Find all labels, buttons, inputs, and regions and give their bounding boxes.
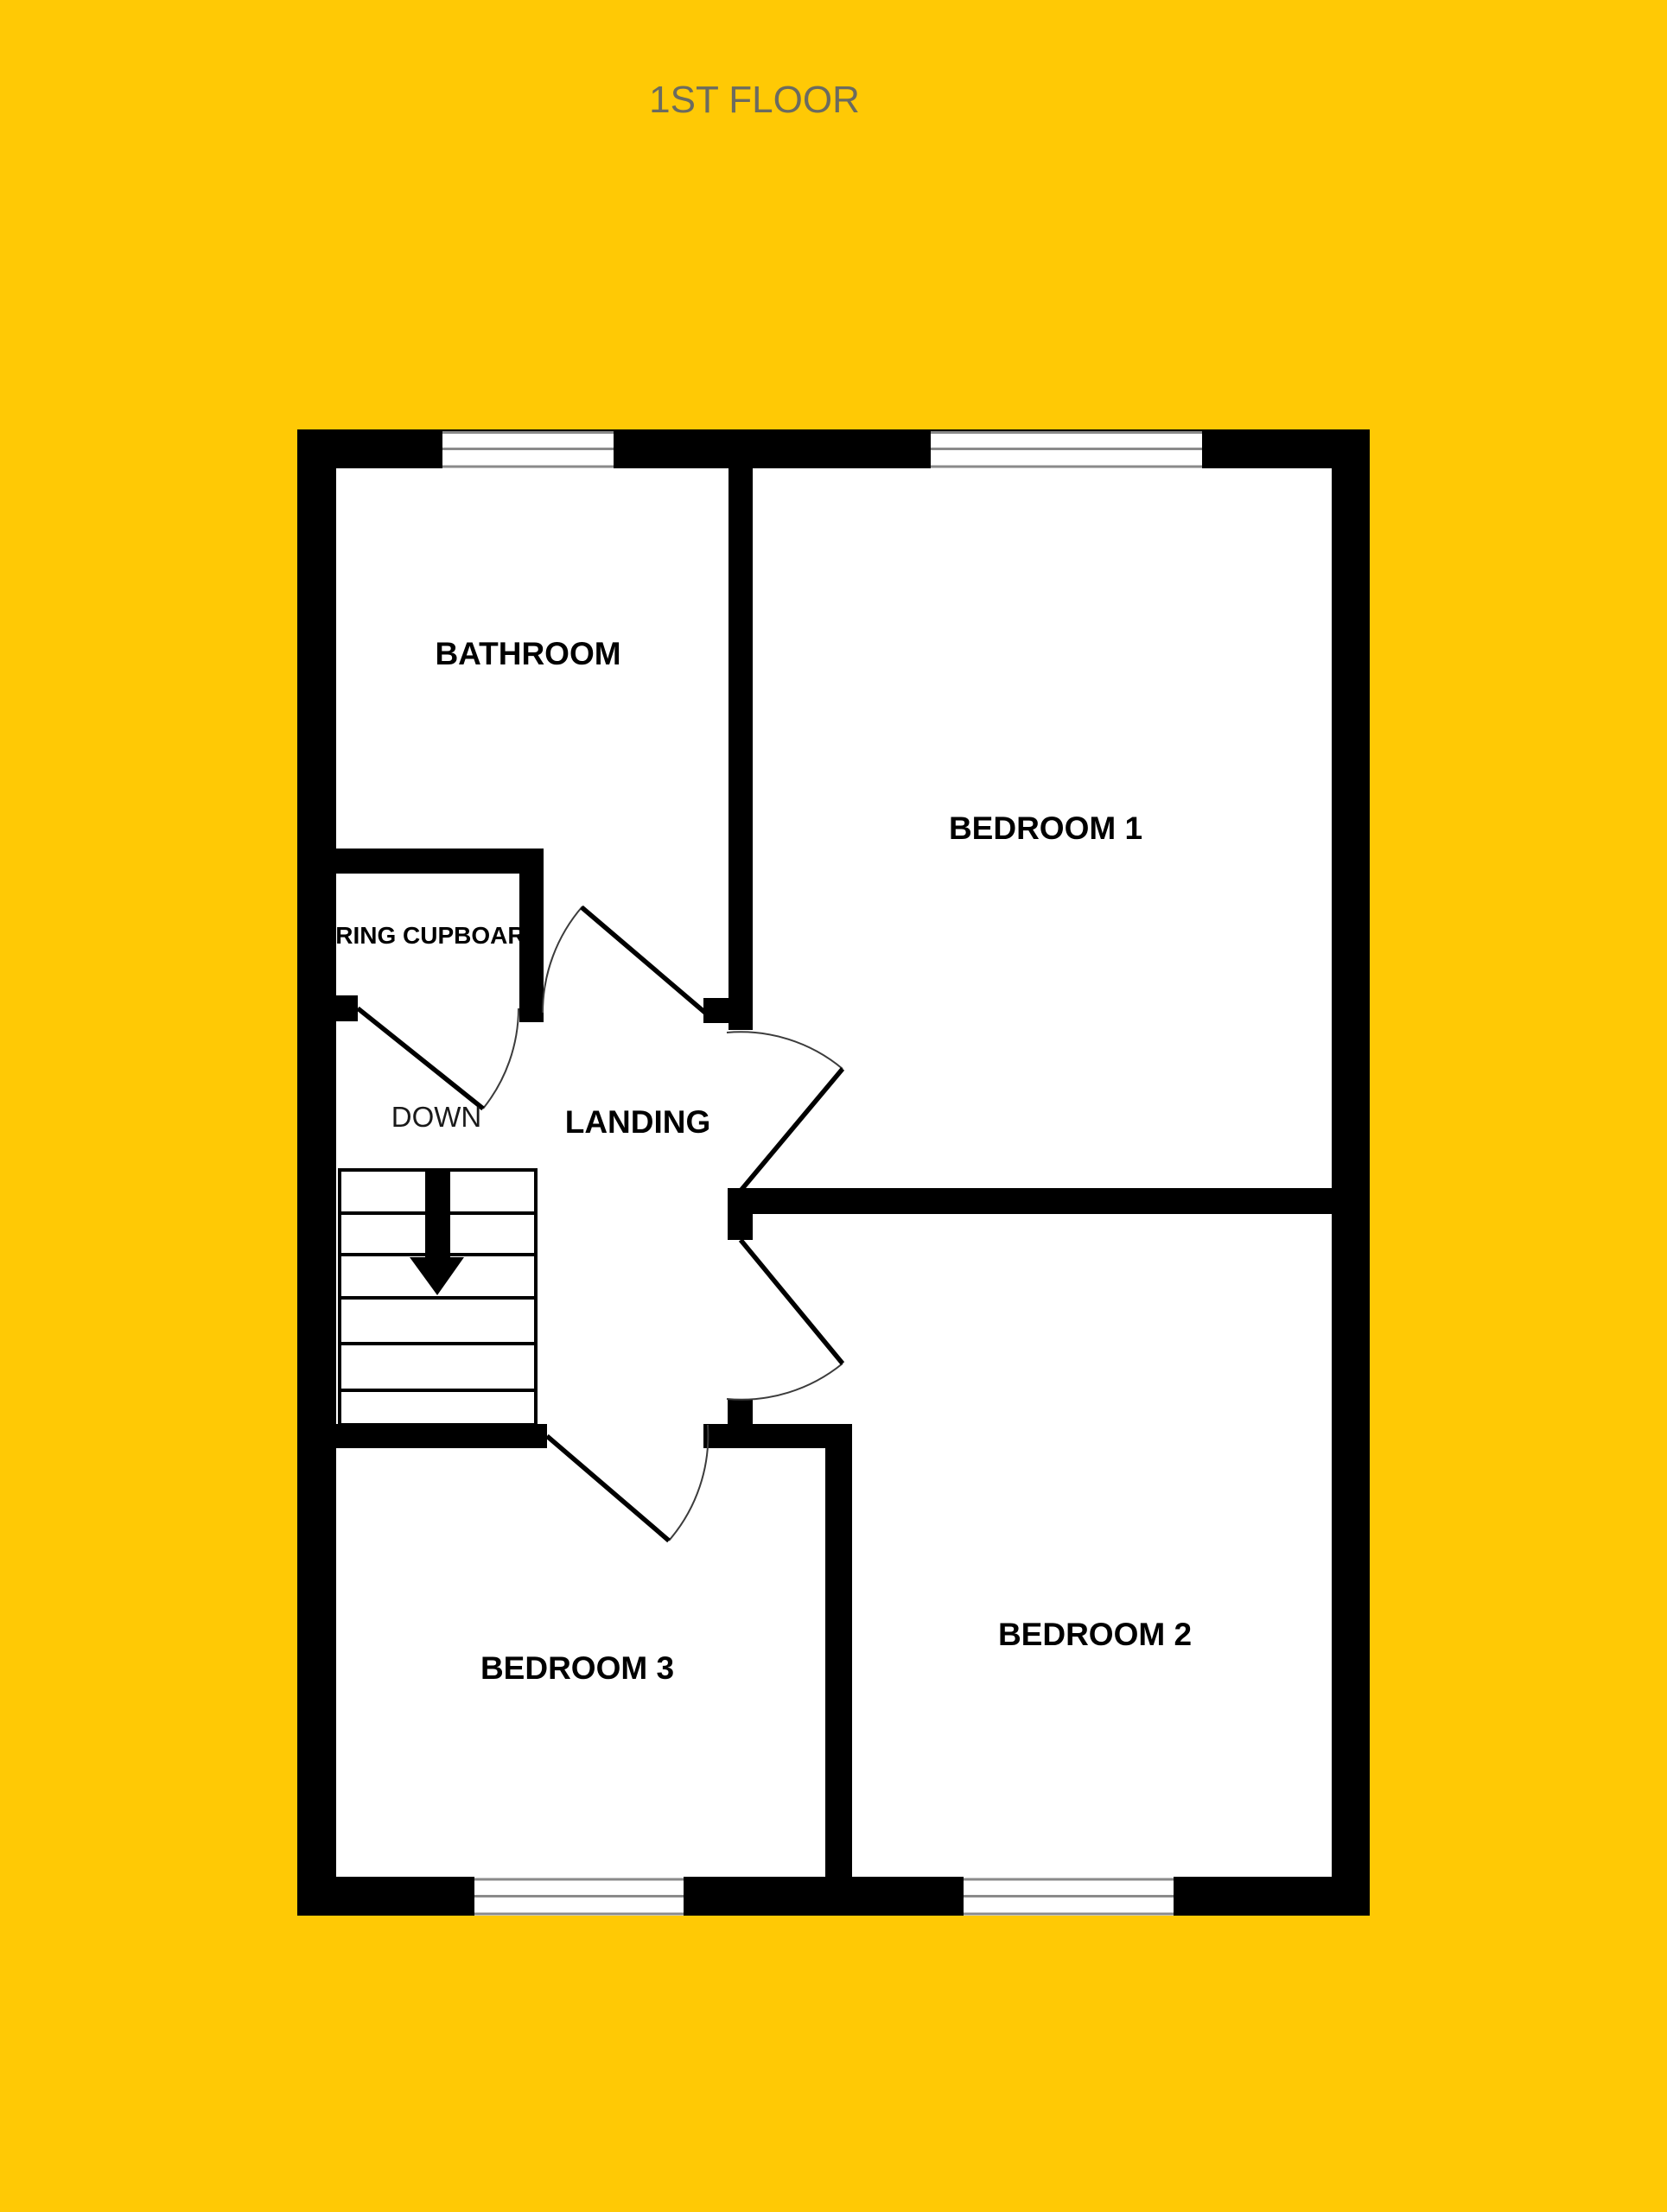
svg-text:BEDROOM 1: BEDROOM 1 <box>949 810 1142 846</box>
svg-text:BEDROOM 2: BEDROOM 2 <box>998 1617 1192 1652</box>
svg-text:LANDING: LANDING <box>565 1104 711 1140</box>
svg-text:DOWN: DOWN <box>391 1101 481 1133</box>
svg-text:1ST FLOOR: 1ST FLOOR <box>649 79 860 121</box>
svg-text:BEDROOM 3: BEDROOM 3 <box>480 1650 674 1686</box>
svg-text:AIRING CUPBOARD: AIRING CUPBOARD <box>311 922 543 949</box>
svg-text:BATHROOM: BATHROOM <box>435 636 620 671</box>
